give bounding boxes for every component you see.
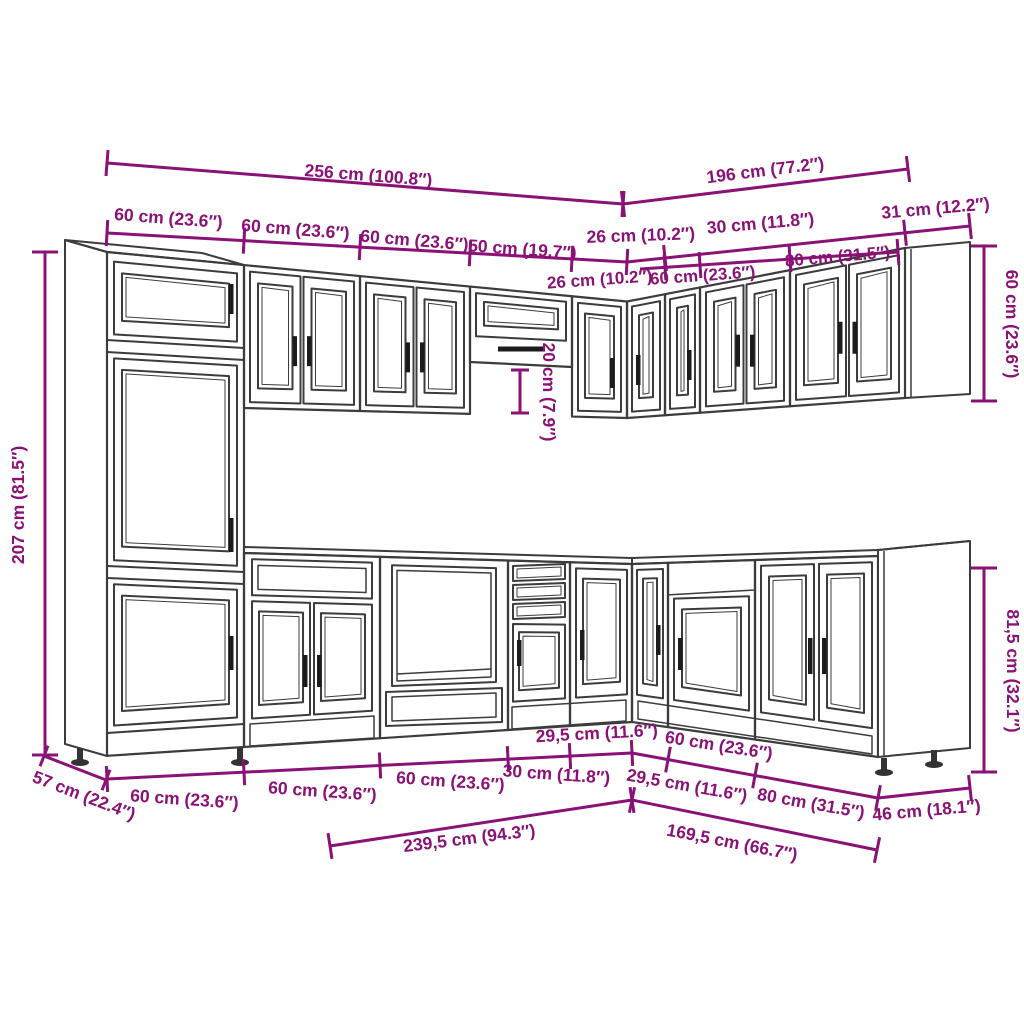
- dim-base-left-3: 60 cm (23.6″): [396, 767, 506, 795]
- dim-wall-depth: 31 cm (12.2″): [881, 193, 991, 222]
- dim-wall-corner-right: 30 cm (11.8″): [706, 208, 815, 237]
- dim-base-right-2: 80 cm (31.5″): [756, 784, 866, 823]
- dim-wall-corner-left: 26 cm (10.2″): [586, 223, 695, 247]
- diagram-canvas: 256 cm (100.8″) 196 cm (77.2″) 60 cm (23…: [0, 0, 1024, 1024]
- dim-base-right-1: 60 cm (23.6″): [664, 727, 774, 764]
- dim-base-height: 81,5 cm (32.1″): [1003, 609, 1023, 732]
- dim-base-depth-right: 46 cm (18.1″): [872, 795, 982, 824]
- dim-wall-left-4: 50 cm (19.7″): [468, 235, 578, 263]
- dim-hood-gap: 20 cm (7.9″): [539, 343, 559, 442]
- dim-wall-end-height: 60 cm (23.6″): [1002, 270, 1022, 379]
- kitchen-dimension-diagram: 256 cm (100.8″) 196 cm (77.2″) 60 cm (23…: [0, 0, 1024, 1024]
- dim-wall-left-1: 60 cm (23.6″): [114, 204, 224, 232]
- dim-base-corner-left: 29,5 cm (11.6″): [535, 720, 658, 746]
- dim-tall-height: 207 cm (81.5″): [8, 446, 28, 564]
- dim-run-left-total: 256 cm (100.8″): [304, 160, 433, 190]
- dim-base-depth-left: 57 cm (22.4″): [30, 767, 139, 825]
- dim-wall-left-2: 60 cm (23.6″): [241, 215, 351, 243]
- dim-base-left-2: 60 cm (23.6″): [268, 777, 378, 805]
- dim-wall-right-1: 26 cm (10.2″): [546, 266, 653, 292]
- dim-base-left-1: 60 cm (23.6″): [130, 785, 240, 813]
- dim-base-left-4: 30 cm (11.8″): [502, 760, 611, 787]
- dim-base-total-right: 169,5 cm (66.7″): [665, 820, 799, 865]
